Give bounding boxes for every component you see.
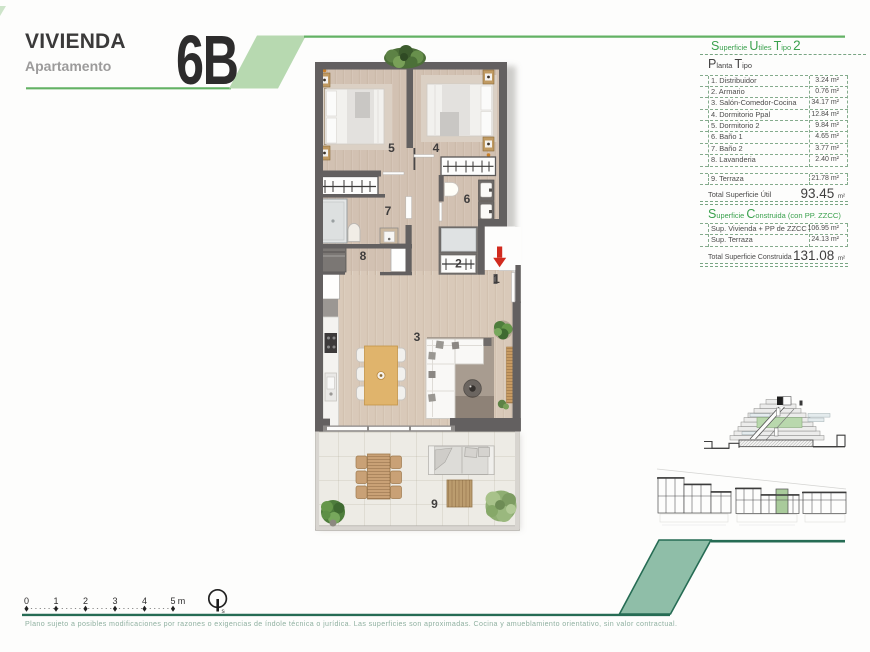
- svg-text:5: 5: [170, 596, 175, 606]
- svg-text:7: 7: [385, 204, 392, 218]
- svg-text:m: m: [178, 596, 186, 606]
- svg-text:5: 5: [388, 141, 395, 155]
- svg-text:4: 4: [142, 596, 147, 606]
- svg-text:2: 2: [83, 596, 88, 606]
- svg-text:6: 6: [464, 192, 471, 206]
- svg-text:0: 0: [24, 596, 29, 606]
- svg-text:9: 9: [431, 497, 438, 511]
- svg-text:1: 1: [493, 272, 500, 286]
- svg-text:3: 3: [414, 330, 421, 344]
- svg-text:3: 3: [112, 596, 117, 606]
- svg-text:4: 4: [433, 141, 440, 155]
- svg-text:1: 1: [53, 596, 58, 606]
- svg-text:8: 8: [360, 249, 367, 263]
- svg-text:2: 2: [455, 257, 462, 271]
